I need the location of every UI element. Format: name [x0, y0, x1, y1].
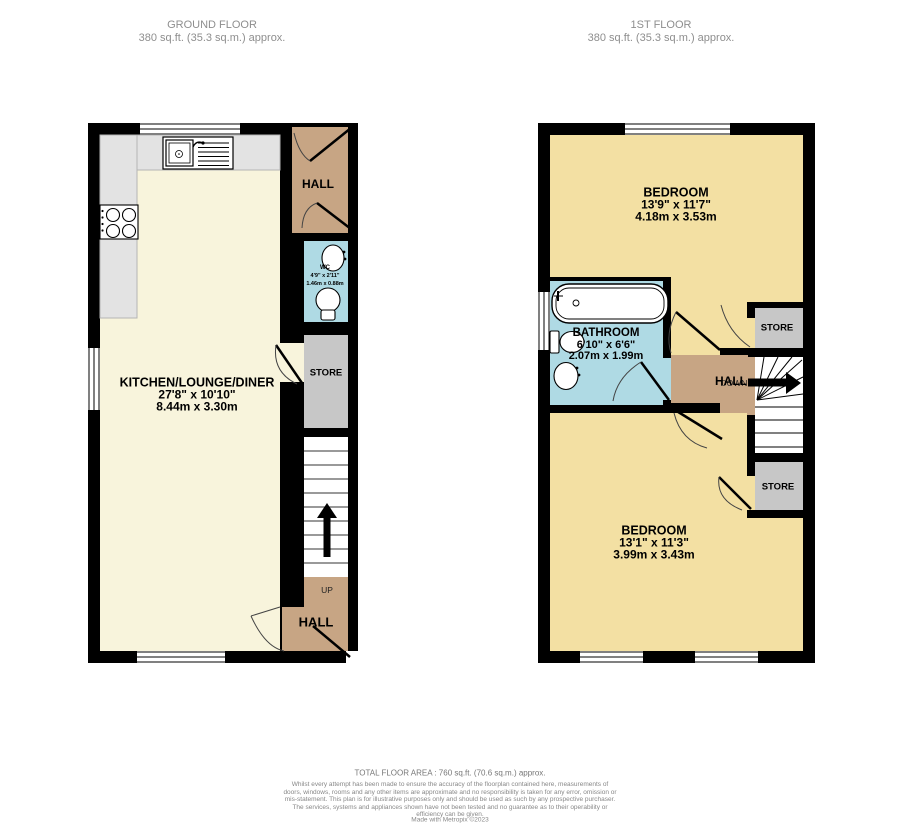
floorplan-page: GROUND FLOOR 380 sq.ft. (35.3 sq.m.) app…	[0, 0, 900, 824]
first-floor-area: 380 sq.ft. (35.3 sq.m.) approx.	[588, 32, 735, 45]
kitchen-metric: 8.44m x 3.30m	[120, 401, 275, 413]
first-floor-title: 1ST FLOOR	[588, 19, 735, 32]
bedroom-top-floor-right	[671, 277, 803, 302]
bedroom-bottom-metric: 3.99m x 3.43m	[613, 549, 694, 561]
bedroom-bottom-floor-right	[747, 518, 803, 651]
stairs-top-wall	[748, 348, 803, 357]
store-ground-door-opening	[280, 343, 304, 382]
store-bottom-bottom-wall	[747, 510, 803, 518]
kitchen-hob-icon	[100, 205, 138, 239]
stairs-down-area	[755, 357, 803, 453]
bedroom-top-label: BEDROOM 13'9" x 11'7" 4.18m x 3.53m	[635, 187, 716, 224]
store-top-label: STORE	[761, 323, 794, 334]
hall-bottom-label: HALL	[299, 615, 334, 630]
wc-metric: 1.46m x 0.88m	[306, 280, 343, 288]
store-bottom-top-wall	[747, 453, 803, 462]
bathroom-metric: 2.07m x 1.99m	[569, 351, 644, 363]
bathroom-label: BATHROOM 6'10" x 6'6" 2.07m x 1.99m	[569, 328, 644, 363]
bedroom-bottom-label: BEDROOM 13'1" x 11'3" 3.99m x 3.43m	[613, 525, 694, 562]
wc-imperial: 4'9" x 2'11"	[306, 272, 343, 280]
hall-first-label: HALL	[715, 374, 747, 388]
kitchen-label: KITCHEN/LOUNGE/DINER 27'8" x 10'10" 8.44…	[120, 377, 275, 414]
bedroom-top-floor-mid	[671, 302, 747, 355]
ground-floor-title: GROUND FLOOR	[139, 19, 286, 32]
metropix-credit: Made with Metropix ©2023	[411, 817, 488, 824]
first-floor-header: 1ST FLOOR 380 sq.ft. (35.3 sq.m.) approx…	[588, 19, 735, 45]
store-ground-floor	[304, 335, 348, 428]
up-label: UP	[321, 585, 333, 595]
wc-name: WC	[306, 264, 343, 272]
kitchen-sink-icon	[163, 137, 233, 169]
wc-label: WC 4'9" x 2'11" 1.46m x 0.88m	[306, 264, 343, 288]
front-door-opening	[346, 651, 358, 663]
bathroom-name: BATHROOM	[569, 328, 644, 340]
ground-floor-header: GROUND FLOOR 380 sq.ft. (35.3 sq.m.) app…	[139, 19, 286, 45]
hall-top-label: HALL	[302, 177, 334, 191]
bedroom-top-metric: 4.18m x 3.53m	[635, 211, 716, 223]
store-ground-label: STORE	[310, 368, 343, 379]
ground-floor-area: 380 sq.ft. (35.3 sq.m.) approx.	[139, 32, 286, 45]
store-bottom-label: STORE	[762, 482, 795, 493]
store-top-door-opening	[747, 318, 755, 348]
bathroom-bottom-wall	[550, 405, 671, 413]
bathtub-icon	[552, 284, 668, 323]
disclaimer-text: Whilst every attempt has been made to en…	[283, 781, 617, 819]
store-top-wall	[747, 302, 803, 308]
total-floor-area: TOTAL FLOOR AREA : 760 sq.ft. (70.6 sq.m…	[354, 769, 545, 778]
